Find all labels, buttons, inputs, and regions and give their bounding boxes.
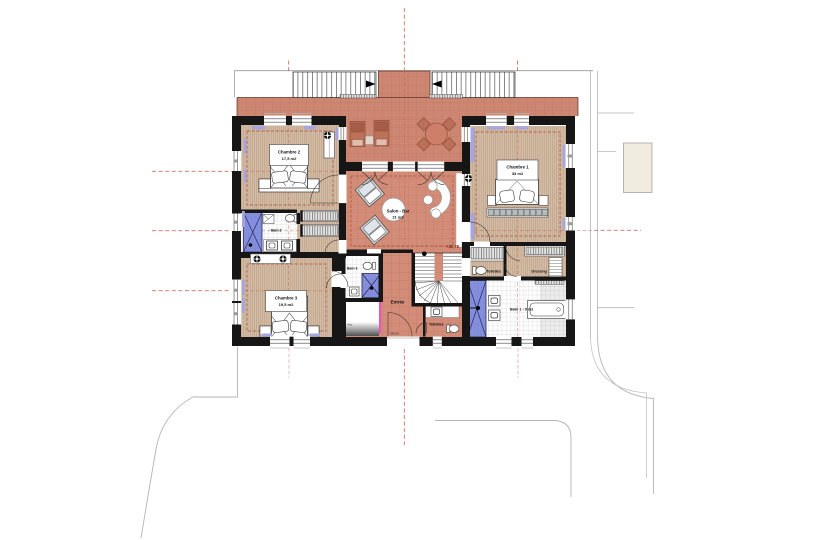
svg-text:+32,78: +32,78 bbox=[446, 244, 460, 249]
svg-text:Toilettes: Toilettes bbox=[429, 323, 444, 327]
svg-text:Asc.: Asc. bbox=[348, 323, 354, 327]
svg-text:17,5 m2: 17,5 m2 bbox=[282, 156, 297, 161]
svg-text:Bain 3: Bain 3 bbox=[347, 267, 358, 271]
svg-text:Bain 2: Bain 2 bbox=[271, 229, 282, 233]
svg-text:33 m2: 33 m2 bbox=[512, 171, 524, 176]
svg-text:Entrée: Entrée bbox=[391, 300, 405, 305]
svg-text:Chambre 2: Chambre 2 bbox=[278, 149, 301, 154]
svg-text:19,5 m2: 19,5 m2 bbox=[279, 302, 294, 307]
svg-text:Chambre 3: Chambre 3 bbox=[275, 295, 298, 300]
svg-text:Salon - Bar: Salon - Bar bbox=[387, 209, 410, 214]
svg-text:Bain 1 - 9 m2: Bain 1 - 9 m2 bbox=[510, 308, 533, 312]
svg-text:21 m2: 21 m2 bbox=[392, 215, 404, 220]
svg-text:+32,55: +32,55 bbox=[389, 332, 399, 336]
svg-text:Toilettes: Toilettes bbox=[487, 270, 502, 274]
svg-text:Chambre 1: Chambre 1 bbox=[506, 165, 529, 170]
svg-text:Dressing: Dressing bbox=[532, 270, 547, 274]
